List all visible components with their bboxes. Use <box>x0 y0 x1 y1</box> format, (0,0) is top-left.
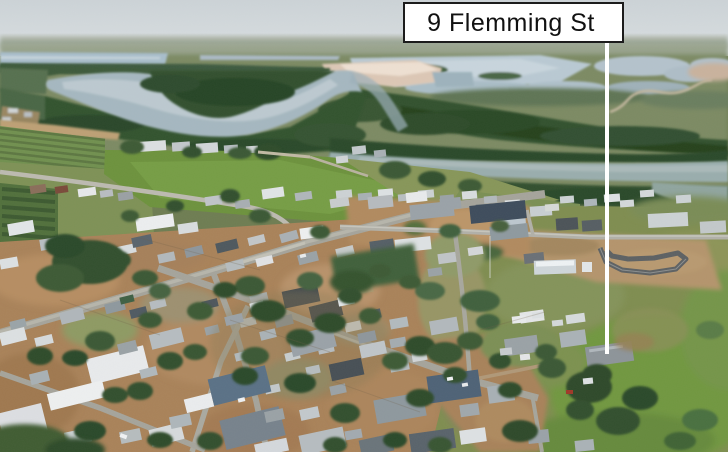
svg-text:9 Flemming St: 9 Flemming St <box>427 9 595 37</box>
